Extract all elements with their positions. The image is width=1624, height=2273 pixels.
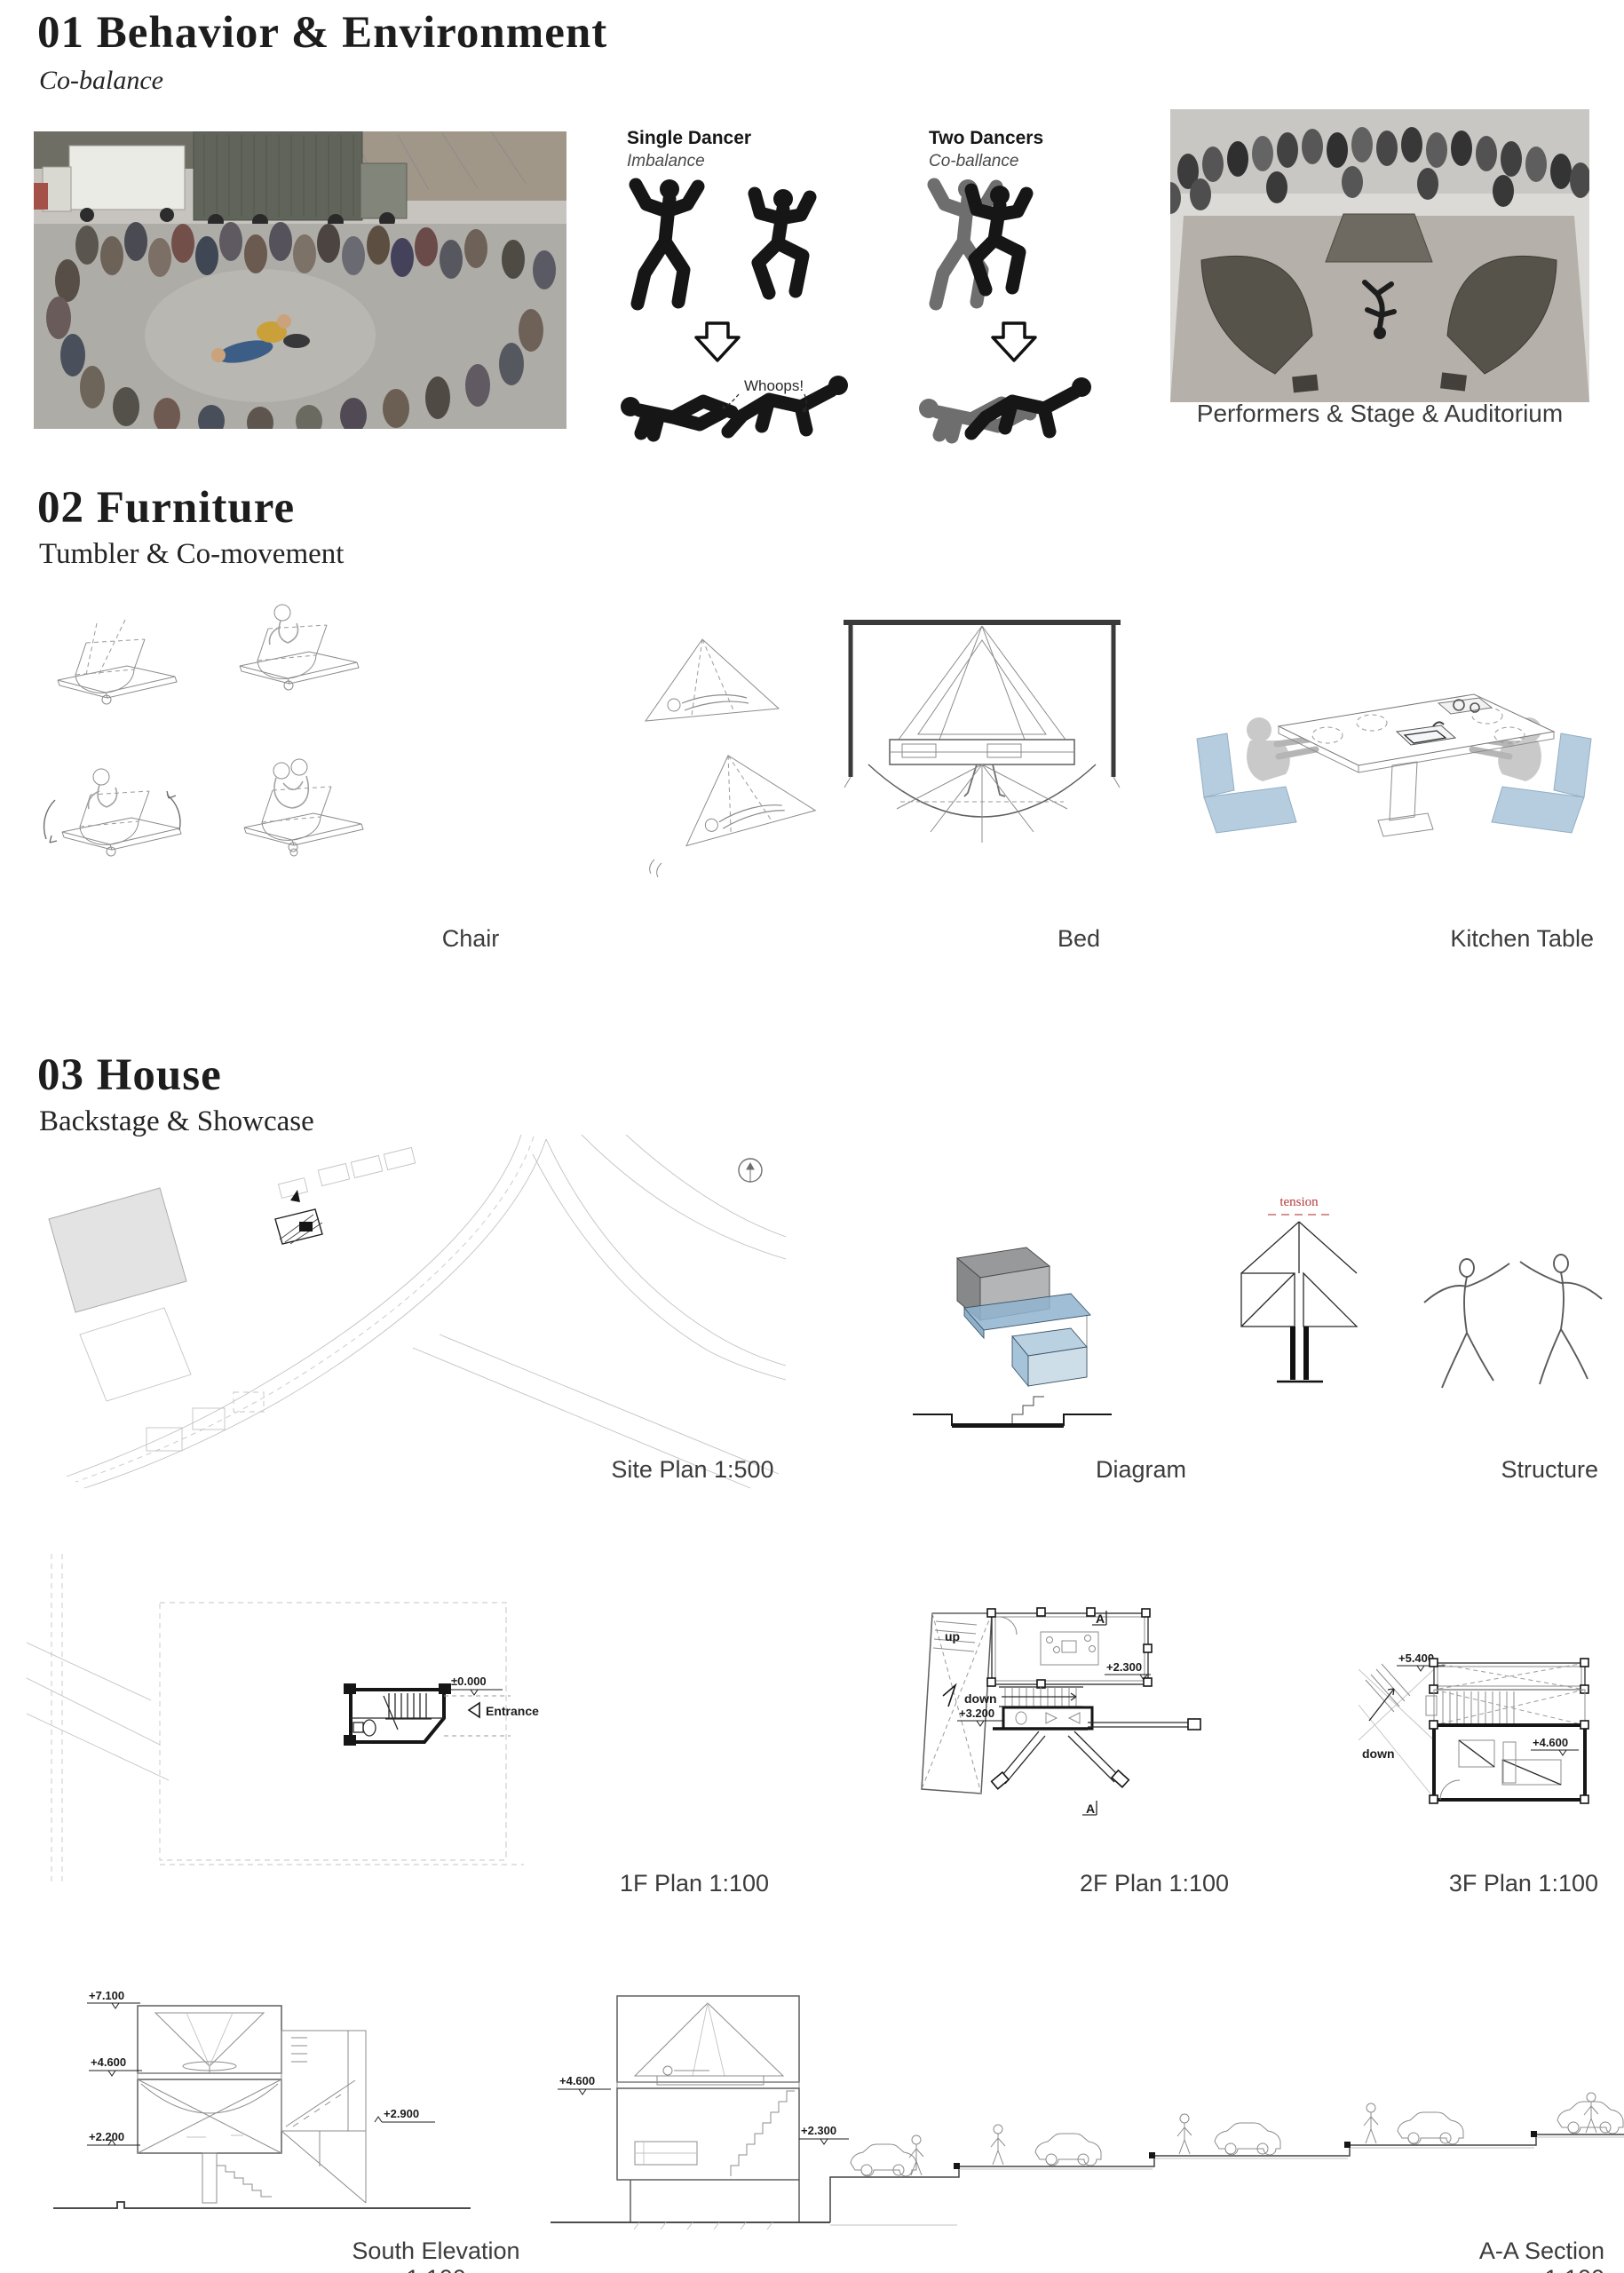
house-section: +4.600 +2.300 — [551, 1996, 849, 2229]
balancing-figures-drawing — [1412, 1247, 1612, 1398]
site-plan-caption: Site Plan 1:500 — [604, 1456, 781, 1484]
terraced-street — [830, 2093, 1624, 2225]
bed-drawings — [635, 597, 1132, 943]
plan-3f-drawing: down +5.400 +4.600 — [1359, 1625, 1624, 1878]
dancer-balance-diagram: Single Dancer Imbalance Two Dancers Co-b… — [613, 123, 1110, 451]
compass-icon — [739, 1159, 762, 1182]
single-dancer-label: Single Dancer — [627, 128, 751, 148]
street-performance-photo — [34, 131, 566, 429]
section1-subtitle: Co-balance — [39, 66, 163, 96]
kitchen-table-drawing — [1181, 657, 1607, 906]
down-label-3f: down — [1362, 1746, 1395, 1761]
elev-2200: +2.200 — [89, 2130, 124, 2143]
structure-diagram: tension — [1215, 1192, 1388, 1400]
kitchen-table-caption: Kitchen Table — [1367, 925, 1594, 953]
level-4600-mark-3f: +4.600 — [1533, 1736, 1568, 1749]
chair-drawings — [40, 604, 519, 932]
elev-7100: +7.100 — [89, 1989, 124, 2002]
site-plan-drawing — [13, 1135, 786, 1490]
co-ballance-label: Co-ballance — [929, 152, 1018, 170]
section-marker-a-bottom: A — [1086, 1802, 1095, 1816]
stage-auditorium-photo — [1170, 109, 1589, 402]
imbalance-label: Imbalance — [627, 152, 705, 170]
stage-caption: Performers & Stage & Auditorium — [1170, 400, 1589, 428]
two-dancers-label: Two Dancers — [929, 128, 1043, 148]
chair-caption: Chair — [382, 925, 559, 953]
section2-subtitle: Tumbler & Co-movement — [39, 538, 344, 571]
axon-diagram — [906, 1203, 1123, 1443]
south-elevation-drawing: +7.100 +4.600 +2.200 +2.900 — [53, 1984, 471, 2237]
section-marker-a-top: A — [1096, 1612, 1105, 1626]
structure-caption: Structure — [1421, 1456, 1598, 1484]
section2-title: 02 Furniture — [37, 482, 295, 534]
tension-label: tension — [1279, 1195, 1319, 1209]
plan-2f-caption: 2F Plan 1:100 — [1066, 1870, 1243, 1897]
whoops-label: Whoops! — [744, 377, 804, 394]
elev-4600: +4.600 — [91, 2055, 126, 2069]
level-zero-mark: ±0.000 — [451, 1675, 487, 1688]
level-5400-mark: +5.400 — [1398, 1651, 1434, 1665]
level-3200-mark: +3.200 — [959, 1707, 994, 1720]
section-aa-drawing: +4.600 +2.300 — [533, 1989, 1624, 2246]
sect-4600: +4.600 — [559, 2074, 595, 2087]
plan-3f-caption: 3F Plan 1:100 — [1412, 1870, 1598, 1897]
section1-title: 01 Behavior & Environment — [37, 7, 607, 59]
bed-caption: Bed — [990, 925, 1168, 953]
swing-bed — [844, 622, 1121, 843]
plan-1f-caption: 1F Plan 1:100 — [606, 1870, 783, 1897]
up-label: up — [945, 1629, 960, 1643]
elev-2900: +2.900 — [384, 2107, 419, 2120]
plan-2f-drawing: up +2.300 down +3.200 A A — [906, 1589, 1208, 1882]
presentation-board: 01 Behavior & Environment Co-balance — [0, 0, 1624, 2273]
plan-1f-drawing: ±0.000 Entrance — [27, 1554, 568, 1882]
south-elevation-caption: South Elevation 1:100 — [334, 2237, 538, 2273]
diagram-caption: Diagram — [1052, 1456, 1230, 1484]
sect-2300: +2.300 — [801, 2124, 836, 2137]
entrance-label: Entrance — [486, 1704, 539, 1718]
down-label-2f: down — [964, 1691, 997, 1706]
level-2300-mark: +2.300 — [1106, 1660, 1142, 1674]
section3-title: 03 House — [37, 1049, 222, 1101]
section-aa-caption: A-A Section 1:100 — [1416, 2237, 1604, 2273]
section3-subtitle: Backstage & Showcase — [39, 1105, 314, 1138]
